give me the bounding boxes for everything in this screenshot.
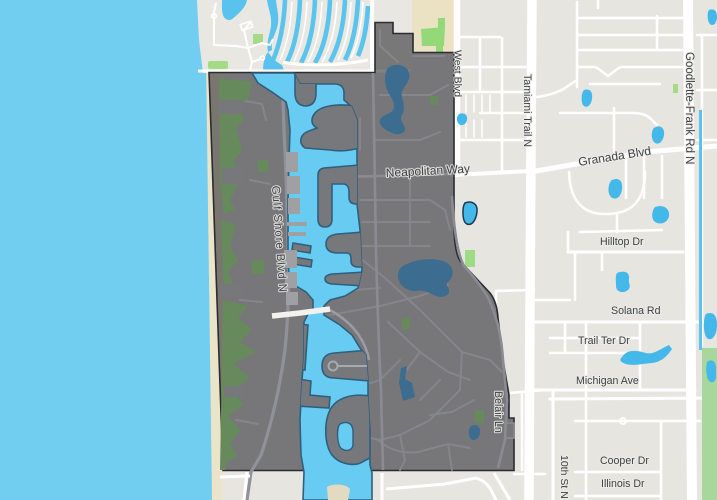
svg-text:Cooper Dr: Cooper Dr: [600, 455, 649, 467]
svg-text:10th St N: 10th St N: [558, 455, 570, 499]
svg-text:Hilltop Dr: Hilltop Dr: [600, 236, 644, 248]
svg-text:West Blvd: West Blvd: [452, 50, 464, 97]
svg-text:Illinois Dr: Illinois Dr: [601, 478, 645, 490]
svg-text:Belair Ln: Belair Ln: [492, 391, 504, 433]
svg-text:Trail Ter Dr: Trail Ter Dr: [578, 335, 630, 347]
svg-text:Solana Rd: Solana Rd: [611, 305, 661, 317]
svg-text:Michigan Ave: Michigan Ave: [576, 375, 639, 387]
svg-text:Goodlette-Frank Rd N: Goodlette-Frank Rd N: [683, 52, 695, 165]
svg-text:Tamiami Trail N: Tamiami Trail N: [521, 74, 533, 147]
